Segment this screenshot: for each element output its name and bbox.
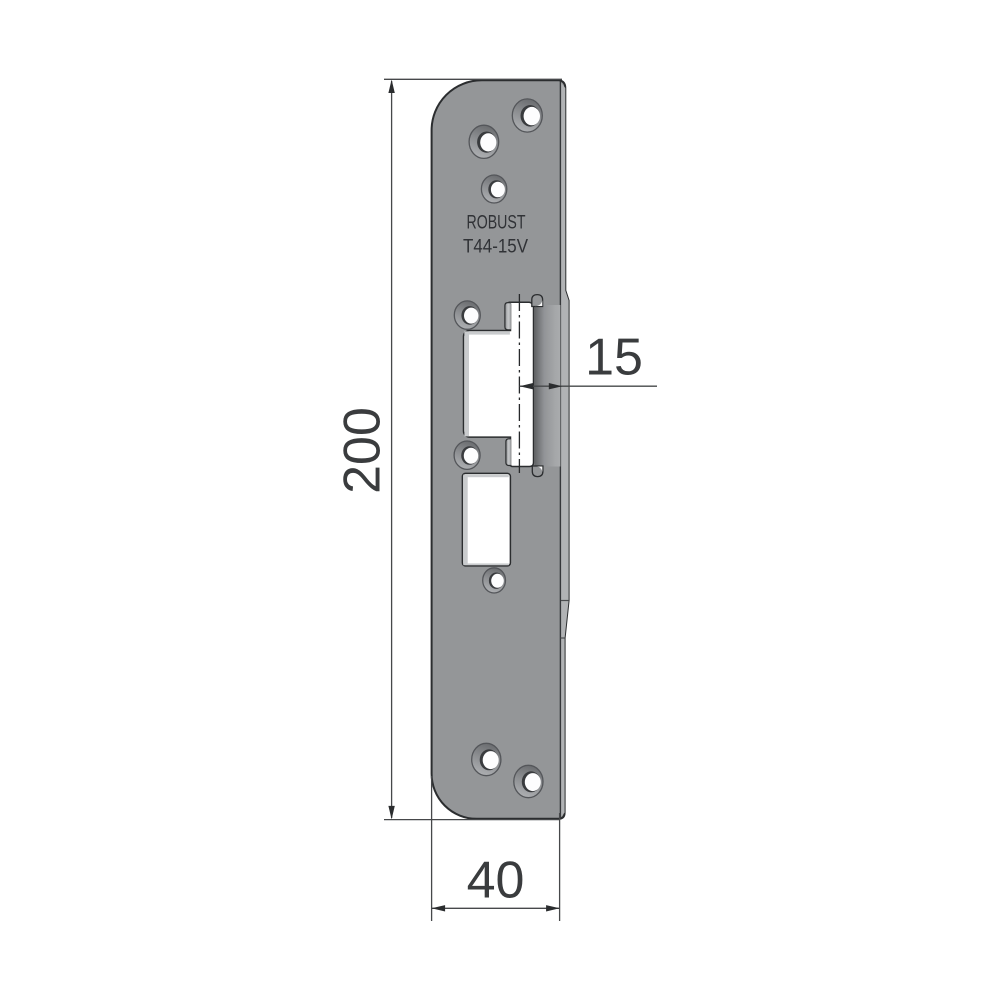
svg-text:T44-15V: T44-15V — [463, 237, 528, 258]
svg-text:ROBUST: ROBUST — [467, 212, 526, 233]
svg-text:15: 15 — [585, 328, 643, 386]
svg-text:40: 40 — [467, 852, 525, 910]
svg-text:200: 200 — [334, 407, 392, 494]
